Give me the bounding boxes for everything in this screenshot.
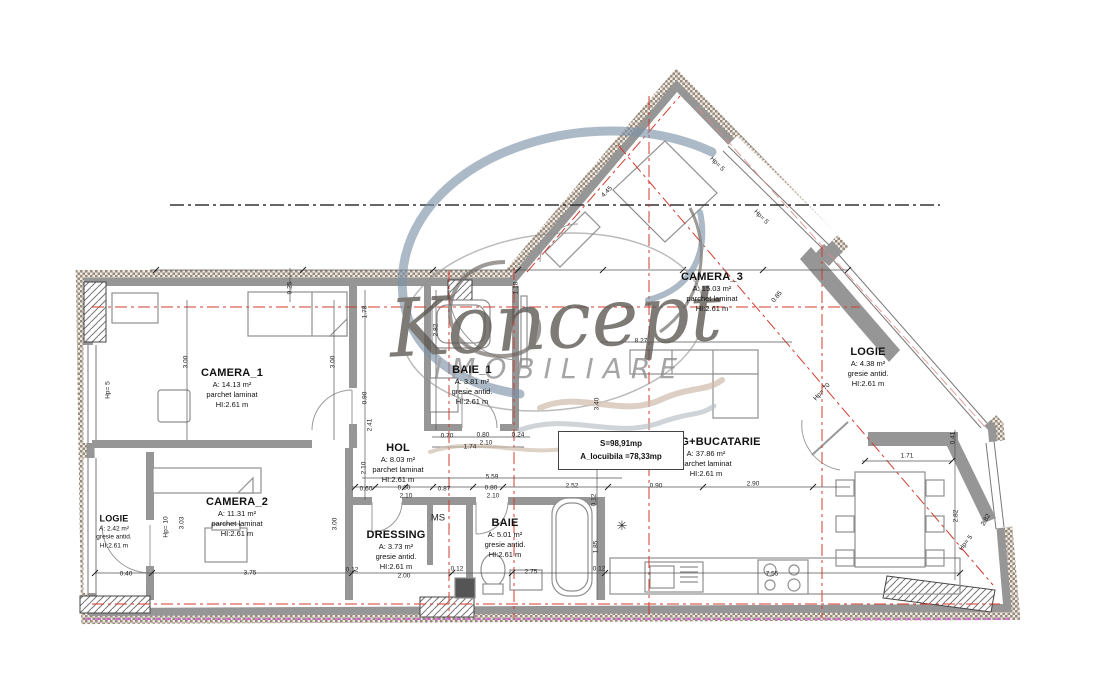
dim-label: 0.12 <box>593 566 606 573</box>
floorplan-page: CAMERA_1 A: 14.13 m² parchet laminat HI:… <box>0 0 1118 677</box>
dim-label: 5.59 <box>486 474 499 481</box>
total-area: S=98,91mp <box>600 438 642 451</box>
labels-layer: CAMERA_1 A: 14.13 m² parchet laminat HI:… <box>0 0 1118 677</box>
dim-label: 1.78 <box>362 306 369 319</box>
dim-label: 2.10 <box>480 440 493 447</box>
dim-label: 2.10 <box>487 493 500 500</box>
dim-label: 0.80 <box>477 432 490 439</box>
room-label-baie: BAIE A: 5.01 m² gresie antid. HI:2.61 m <box>485 516 526 560</box>
dim-label: Hp= 5 <box>958 534 974 552</box>
dim-label: 3.00 <box>332 518 339 531</box>
room-label-hol: HOL A: 8.03 m² parchet laminat HI:2.61 m <box>372 441 423 485</box>
dim-label: Hp= 10 <box>163 516 170 537</box>
dim-label: 4.45 <box>600 185 614 199</box>
dim-label: 0.25 <box>287 282 294 295</box>
room-label-logie-left: LOGIE A: 2.42 m² gresie antid. HI:2.61 m <box>96 514 131 551</box>
dim-label: Hp= 5 <box>105 381 112 399</box>
room-label-camera3: CAMERA_3 A: 15.03 m² parchet laminat HI:… <box>681 270 743 314</box>
dim-label: 7.55 <box>766 571 779 578</box>
dim-label: 0.87 <box>438 486 451 493</box>
dim-label: 2.41 <box>367 419 374 432</box>
dim-label: Hp= 5 <box>752 208 769 225</box>
room-label-logie-right: LOGIE A: 4.38 m² gresie antid. HI:2.61 m <box>848 345 889 389</box>
dim-label: 2.82 <box>953 510 960 523</box>
room-label-ms: MS <box>431 513 445 524</box>
dim-label: 1.74 <box>464 444 477 451</box>
dim-label: 2.82 <box>433 324 440 337</box>
dim-label: 0.41 <box>950 432 957 445</box>
usable-area: A_locuibila =78,33mp <box>580 451 662 464</box>
dim-label: 3.75 <box>244 570 257 577</box>
dim-label: 3.40 <box>594 398 601 411</box>
dim-label: 0.70 <box>441 433 454 440</box>
dim-label: 2.00 <box>398 573 411 580</box>
room-label-dressing: DRESSING A: 3.73 m² gresie antid. HI:2.6… <box>366 528 425 572</box>
dim-label: 0.80 <box>398 485 411 492</box>
dim-label: 0.90 <box>362 392 369 405</box>
dim-label: 0.24 <box>512 432 525 439</box>
dim-label: 0.85 <box>770 290 783 304</box>
dim-label: 0.80 <box>485 485 498 492</box>
dim-label: 0.12 <box>346 567 359 574</box>
dim-label: 0.60 <box>360 486 373 493</box>
dim-label: 2.10 <box>400 493 413 500</box>
dim-label: 0.12 <box>591 494 598 507</box>
dim-label: 2.10 <box>361 462 368 475</box>
dim-label: 3.00 <box>183 356 190 369</box>
dim-label: Hp= 70 <box>812 382 831 402</box>
dim-label: 3.03 <box>179 517 186 530</box>
appliance-symbol-icon: ✳ <box>617 518 628 534</box>
dim-label: 0.90 <box>650 483 663 490</box>
dim-label: 1.18 <box>513 282 520 295</box>
room-label-camera2: CAMERA_2 A: 11.31 m² parchet laminat HI:… <box>206 495 268 539</box>
dim-label: 3.00 <box>330 356 337 369</box>
room-label-baie1: BAIE_1 A: 3.81 m² gresie antid. HI:2.61 … <box>452 363 493 407</box>
area-summary-box: S=98,91mp A_locuibila =78,33mp <box>558 431 684 470</box>
dim-label: 0.40 <box>120 571 133 578</box>
dim-label: 8.27 <box>635 338 648 345</box>
dim-label: 2.90 <box>747 481 760 488</box>
dim-label: 2.82 <box>980 513 992 527</box>
dim-label: 0.12 <box>451 566 464 573</box>
dim-label: 2.52 <box>566 483 579 490</box>
dim-label: 2.75 <box>525 569 538 576</box>
dim-label: Hp= 5 <box>708 155 725 172</box>
dim-label: 1.71 <box>901 453 914 460</box>
room-label-camera1: CAMERA_1 A: 14.13 m² parchet laminat HI:… <box>201 366 263 410</box>
dim-label: 1.85 <box>593 541 600 554</box>
